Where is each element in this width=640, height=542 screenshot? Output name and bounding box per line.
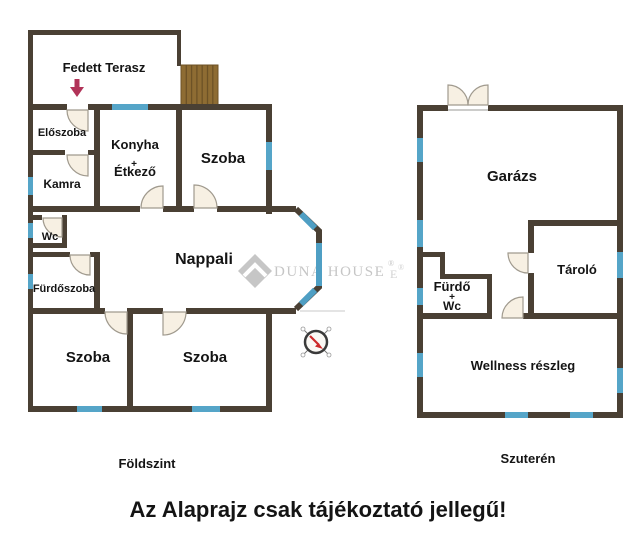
window-symbol bbox=[192, 406, 220, 412]
wall bbox=[28, 206, 140, 212]
room-label-garage: Garázs bbox=[487, 168, 537, 185]
stairs-symbol bbox=[181, 65, 218, 105]
garage-door-arc bbox=[468, 85, 488, 105]
window-symbol bbox=[112, 104, 148, 110]
wall bbox=[528, 220, 617, 226]
wall bbox=[523, 313, 617, 319]
ground-floor-plan: Fedett Terasz Előszoba Konyha + Étkező S… bbox=[28, 30, 345, 412]
window-symbol bbox=[28, 177, 33, 195]
room-label-room-bl: Szoba bbox=[66, 349, 111, 366]
window-symbol bbox=[570, 412, 593, 418]
room-label-room-bm: Szoba bbox=[183, 349, 228, 366]
window-symbol bbox=[617, 252, 623, 278]
room-label-kitchen: Konyha bbox=[111, 137, 159, 152]
wall bbox=[177, 30, 181, 66]
wall bbox=[28, 30, 181, 35]
room-label-wc: Wc bbox=[42, 231, 59, 243]
basement-caption: Szuterén bbox=[501, 451, 556, 466]
window-symbol bbox=[417, 288, 423, 305]
wall bbox=[28, 252, 70, 257]
wall bbox=[28, 104, 67, 110]
compass-icon bbox=[301, 327, 331, 357]
wall bbox=[528, 220, 534, 253]
door-arc bbox=[67, 155, 88, 176]
door-arc bbox=[105, 312, 127, 334]
room-label-wellness: Wellness részleg bbox=[471, 358, 576, 373]
room-label-entry: Előszoba bbox=[38, 127, 87, 139]
room-label-terrace: Fedett Terasz bbox=[63, 60, 146, 75]
window-symbol bbox=[417, 220, 423, 247]
floor-plan-image: DUNA HOUSE ® E ® bbox=[0, 0, 640, 542]
door-arc bbox=[163, 312, 186, 335]
door-arc bbox=[508, 253, 528, 273]
watermark-fragment-text: E bbox=[390, 267, 397, 281]
wall bbox=[28, 308, 105, 314]
wall bbox=[127, 308, 163, 314]
wall bbox=[528, 273, 534, 319]
watermark-brand-text: DUNA HOUSE bbox=[274, 264, 385, 280]
wall bbox=[186, 308, 296, 314]
door-arc bbox=[502, 297, 523, 318]
window-symbol bbox=[417, 138, 423, 162]
wall bbox=[127, 314, 133, 406]
window-symbol bbox=[505, 412, 528, 418]
wall bbox=[33, 243, 67, 248]
ground-floor-caption: Földszint bbox=[118, 456, 176, 471]
room-label-storage: Tároló bbox=[557, 262, 597, 277]
room-label-pantry: Kamra bbox=[43, 177, 81, 191]
wall bbox=[163, 206, 194, 212]
door-arc bbox=[141, 186, 163, 208]
wall bbox=[28, 30, 33, 109]
wall bbox=[33, 150, 65, 155]
door-arc bbox=[70, 255, 90, 275]
wall bbox=[88, 150, 94, 155]
wall bbox=[488, 105, 623, 111]
wall bbox=[94, 110, 100, 206]
room-label-bath-wc: Wc bbox=[443, 299, 461, 313]
room-label-bathroom: Fürdőszoba bbox=[33, 283, 96, 295]
window-symbol bbox=[617, 368, 623, 393]
duna-house-logo-diamond-icon bbox=[238, 254, 272, 288]
room-label-living: Nappali bbox=[175, 251, 233, 268]
watermark-fragment-registered: ® bbox=[398, 263, 404, 272]
entry-arrow-icon bbox=[70, 79, 84, 97]
window-symbol bbox=[301, 214, 315, 228]
basement-plan: Garázs Tároló Fürdő + Wc Wellness részle… bbox=[417, 85, 623, 418]
window-symbol bbox=[417, 353, 423, 377]
room-label-room-top: Szoba bbox=[201, 150, 246, 167]
wall bbox=[28, 104, 33, 412]
window-symbol bbox=[266, 142, 272, 170]
wall bbox=[28, 406, 272, 412]
wall bbox=[176, 110, 182, 206]
wall bbox=[266, 308, 272, 412]
wall bbox=[487, 274, 492, 319]
disclaimer-text: Az Alaprajz csak tájékoztató jellegű! bbox=[130, 497, 507, 522]
wall bbox=[33, 215, 42, 220]
window-symbol bbox=[77, 406, 102, 412]
garage-door-arc bbox=[448, 85, 468, 105]
floor-plan-canvas: DUNA HOUSE ® E ® bbox=[0, 0, 640, 542]
wall bbox=[217, 206, 296, 212]
window-symbol bbox=[301, 290, 315, 304]
wall bbox=[423, 313, 492, 319]
door-arc bbox=[194, 185, 217, 208]
window-symbol bbox=[28, 223, 33, 238]
room-label-dining: Étkező bbox=[114, 164, 156, 179]
